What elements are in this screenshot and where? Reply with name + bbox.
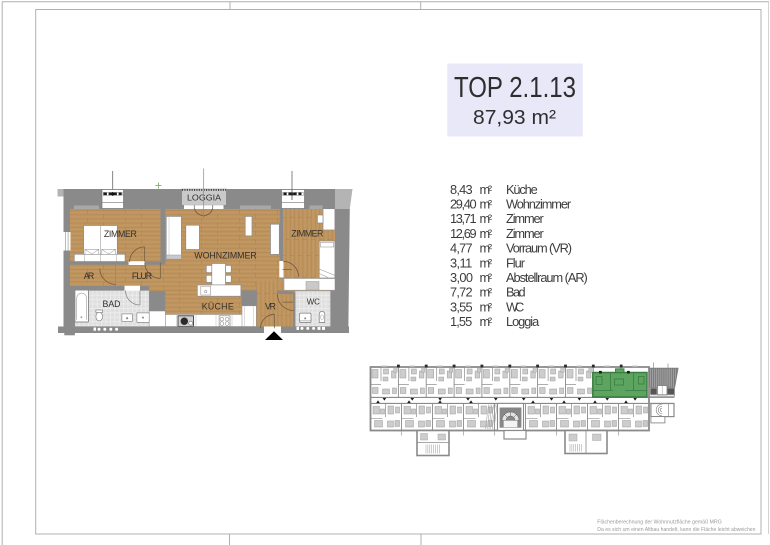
svg-text:7,72: 7,72 bbox=[450, 285, 473, 300]
svg-text:m²: m² bbox=[480, 197, 493, 212]
svg-text:WC: WC bbox=[307, 297, 320, 306]
svg-text:m²: m² bbox=[480, 226, 493, 241]
svg-text:AR: AR bbox=[84, 271, 95, 281]
svg-text:3,55: 3,55 bbox=[450, 299, 473, 314]
svg-text:4,77: 4,77 bbox=[450, 241, 473, 256]
svg-text:Zimmer: Zimmer bbox=[506, 226, 545, 241]
svg-text:ZIMMER: ZIMMER bbox=[104, 229, 137, 239]
svg-text:Vorraum (VR): Vorraum (VR) bbox=[506, 241, 572, 256]
svg-text:TOP 2.1.13: TOP 2.1.13 bbox=[454, 72, 576, 104]
svg-text:m²: m² bbox=[480, 255, 493, 270]
svg-text:m²: m² bbox=[480, 299, 493, 314]
svg-text:8,43: 8,43 bbox=[450, 182, 473, 197]
svg-text:13,71: 13,71 bbox=[450, 211, 477, 226]
svg-text:VR: VR bbox=[265, 301, 276, 311]
svg-text:Da es sich um einen Altbau han: Da es sich um einen Altbau handelt, kann… bbox=[597, 527, 755, 533]
svg-text:m²: m² bbox=[480, 270, 493, 285]
svg-text:WOHNZIMMER: WOHNZIMMER bbox=[194, 251, 256, 261]
svg-text:Küche: Küche bbox=[506, 182, 538, 197]
svg-text:ZIMMER: ZIMMER bbox=[291, 229, 323, 239]
svg-text:Wohnzimmer: Wohnzimmer bbox=[506, 197, 572, 212]
svg-text:3,00: 3,00 bbox=[450, 270, 473, 285]
svg-text:1,55: 1,55 bbox=[450, 314, 472, 329]
svg-text:Flur: Flur bbox=[506, 255, 526, 270]
svg-text:BAD: BAD bbox=[103, 299, 121, 309]
svg-text:3,11: 3,11 bbox=[450, 255, 472, 270]
svg-text:WC: WC bbox=[506, 299, 524, 314]
svg-text:KÜCHE: KÜCHE bbox=[202, 301, 234, 311]
svg-text:m²: m² bbox=[480, 241, 493, 256]
svg-text:Abstellraum (AR): Abstellraum (AR) bbox=[506, 270, 588, 285]
svg-text:Flächenberechnung der Wohnnutz: Flächenberechnung der Wohnnutzfläche gem… bbox=[597, 520, 722, 526]
svg-text:Loggia: Loggia bbox=[506, 314, 540, 329]
svg-text:29,40: 29,40 bbox=[450, 197, 477, 212]
svg-text:FLUR: FLUR bbox=[132, 271, 152, 281]
svg-text:m²: m² bbox=[480, 211, 493, 226]
svg-text:Zimmer: Zimmer bbox=[506, 211, 545, 226]
svg-text:m²: m² bbox=[480, 182, 493, 197]
svg-text:m²: m² bbox=[480, 314, 493, 329]
svg-text:87,93 m²: 87,93 m² bbox=[473, 106, 556, 129]
svg-text:12,69: 12,69 bbox=[450, 226, 477, 241]
svg-text:Bad: Bad bbox=[506, 285, 526, 300]
svg-text:LOGGIA: LOGGIA bbox=[187, 194, 222, 203]
svg-text:m²: m² bbox=[480, 285, 493, 300]
